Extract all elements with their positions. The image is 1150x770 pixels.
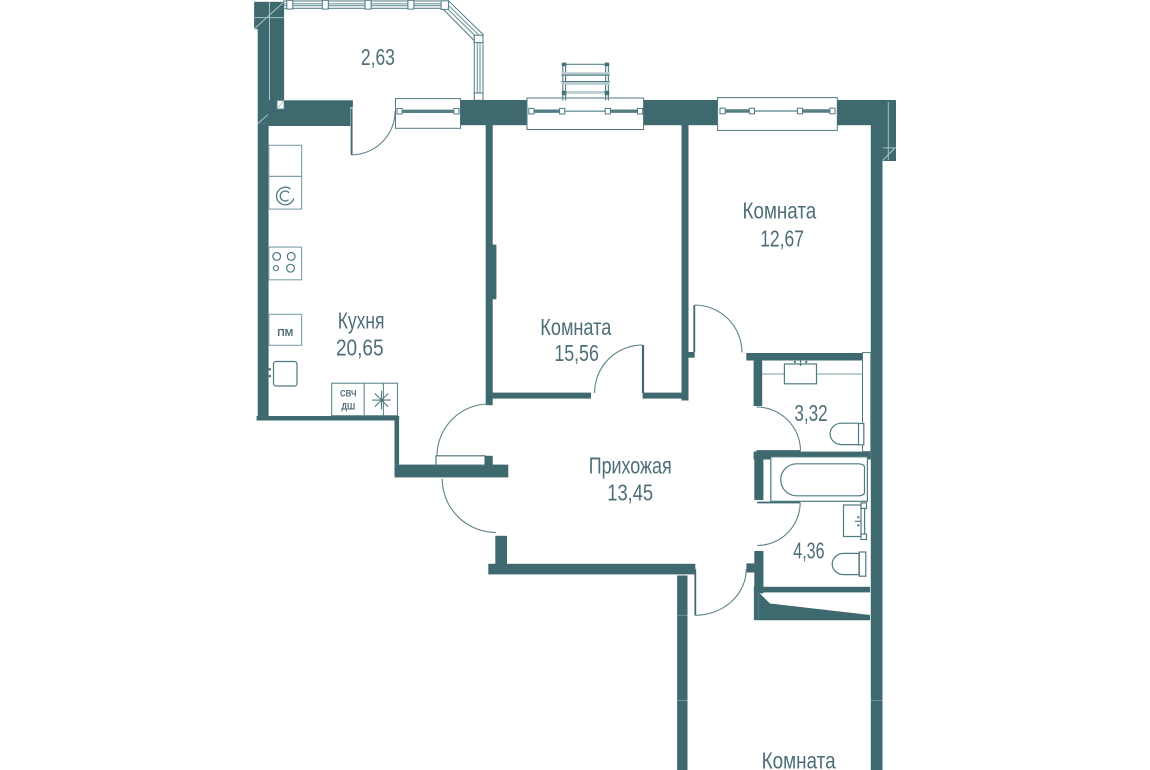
- svg-text:Комната: Комната: [743, 198, 817, 224]
- svg-text:Комната: Комната: [762, 748, 836, 770]
- svg-text:СВЧ: СВЧ: [340, 389, 357, 399]
- svg-text:ПМ: ПМ: [277, 327, 293, 339]
- svg-text:4,36: 4,36: [793, 538, 824, 564]
- svg-text:Кухня: Кухня: [338, 308, 385, 334]
- svg-text:12,67: 12,67: [760, 225, 804, 251]
- svg-text:13,45: 13,45: [607, 480, 653, 506]
- svg-text:ДШ: ДШ: [341, 401, 355, 411]
- svg-text:20,65: 20,65: [336, 335, 384, 361]
- svg-text:15,56: 15,56: [554, 340, 599, 366]
- svg-text:Прихожая: Прихожая: [589, 452, 672, 478]
- svg-text:Комната: Комната: [540, 314, 611, 340]
- svg-text:2,63: 2,63: [361, 44, 395, 70]
- svg-text:3,32: 3,32: [794, 400, 827, 426]
